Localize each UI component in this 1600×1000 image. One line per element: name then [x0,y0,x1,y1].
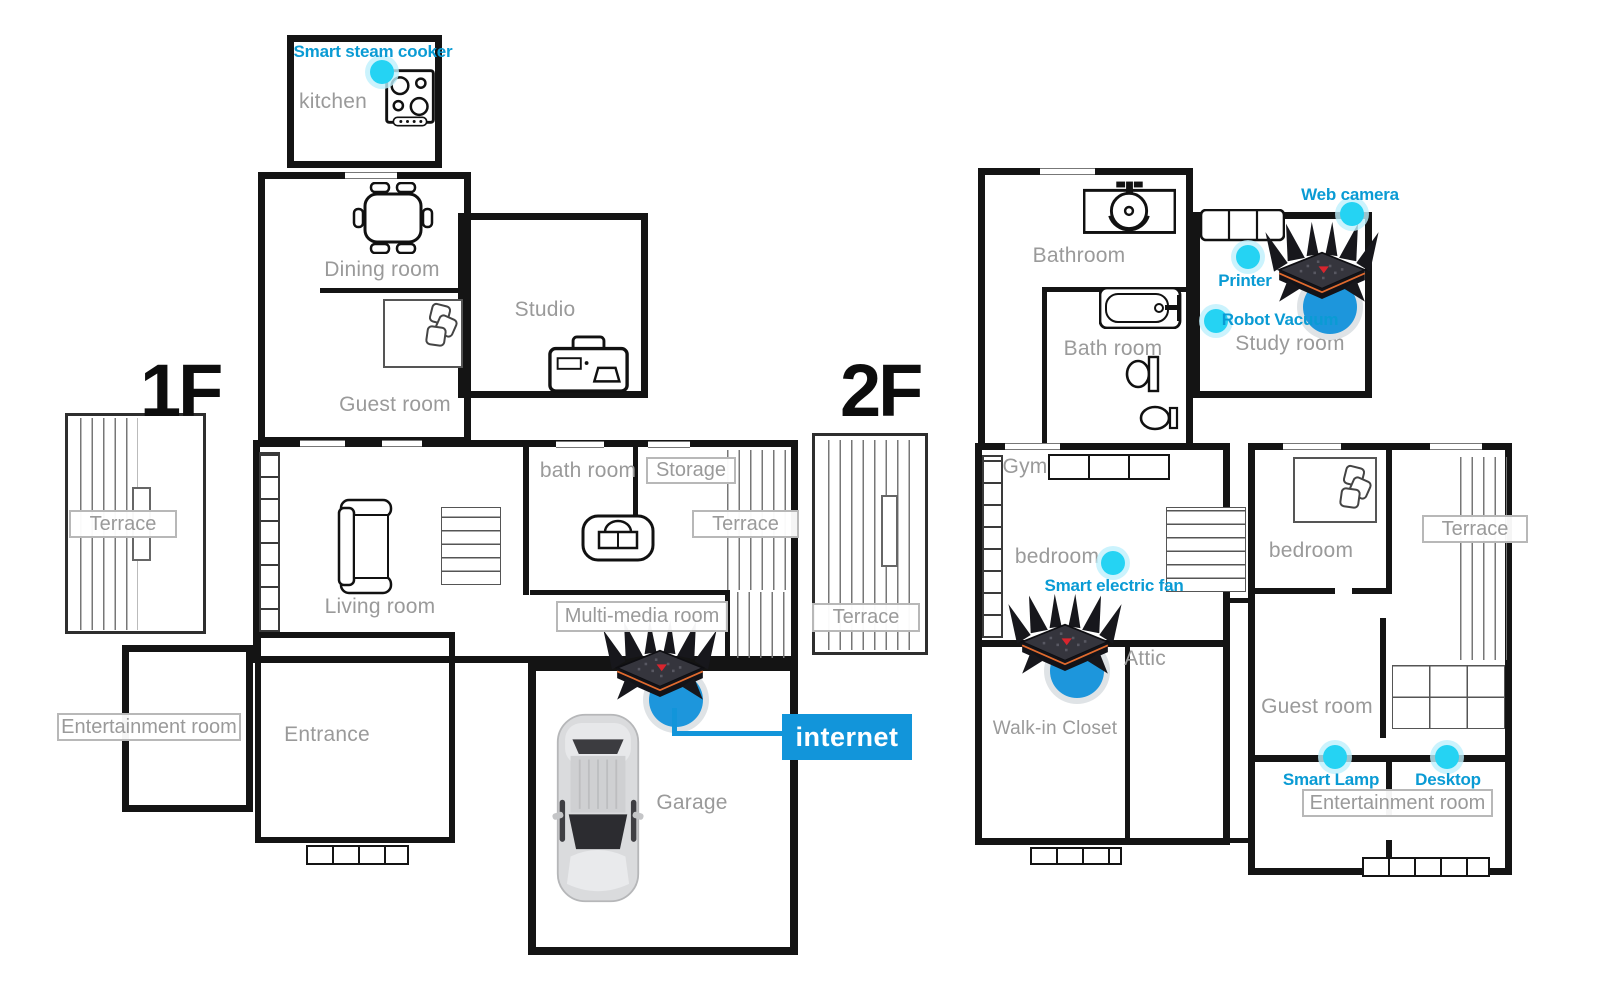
window [1040,168,1095,175]
wall [320,288,471,293]
sofa-icon [337,498,395,595]
staircase-1f [441,507,501,585]
window [648,441,690,448]
dining-table-icon [342,182,444,254]
bed-icon [1293,457,1377,523]
floor2-title: 2F [840,348,920,433]
window [556,441,604,448]
window [1430,443,1482,450]
closet-steps [1030,847,1122,865]
desktop-label: Desktop [1415,770,1481,790]
entrance-label: Entrance [284,723,370,747]
wall [1125,647,1130,840]
internet-line [672,731,784,736]
toilet-icon [1124,353,1160,395]
window [1283,443,1341,450]
closet-grid [1392,665,1505,729]
wall [530,590,730,595]
smart-steam-cooker-label: Smart steam cooker [294,42,453,62]
wall [1042,290,1047,450]
wifi-router-icon [1262,220,1382,306]
terrace-1f-left-label: Terrace [69,510,177,538]
bedroom-2f-right-label: bedroom [1269,539,1353,563]
study-room-label: Study room [1235,332,1344,356]
dining-room-label: Dining room [324,258,439,282]
sink-icon [1083,180,1176,235]
wall [523,447,529,595]
printer-dot [1236,245,1260,269]
smart-electric-fan-label: Smart electric fan [1044,576,1183,596]
guest-room-1f-label: Guest room [339,393,451,417]
internet-badge: internet [782,714,912,760]
terrace-decking [1450,457,1507,660]
entrance-steps [306,845,409,865]
garage-label: Garage [656,791,727,815]
terrace-2f-right-label: Terrace [1422,515,1528,543]
wall [1255,755,1505,762]
wall [1230,598,1248,603]
studio-label: Studio [515,298,576,322]
wifi-router-icon [1005,592,1125,678]
wall [1380,618,1386,738]
wall [1386,450,1392,590]
terrace-2f-left-label: Terrace [812,603,920,632]
multi-media-room-label: Multi-media room [556,601,728,632]
bathtub-icon [1099,287,1184,329]
printer-label: Printer [1218,271,1271,291]
window [1005,443,1060,450]
bathroom-2f-label: Bathroom [1033,244,1126,268]
storage-label: Storage [646,457,736,484]
desk-icon [548,334,630,394]
radiator-2f [982,455,1003,638]
entertainment-steps [1362,857,1490,877]
radiator-1f [259,452,280,632]
gym-closet [1048,454,1170,480]
smart-lamp-dot [1323,745,1347,769]
terrace-1f-right-label: Terrace [692,510,799,538]
floorplan-canvas: 1F [0,0,1600,1000]
web-camera-label: Web camera [1301,185,1399,205]
living-room-label: Living room [325,595,436,619]
robot-vacuum-label: Robot Vacuum [1222,310,1339,330]
window [300,440,345,447]
gym-label: Gym [1003,455,1048,479]
wall [1230,838,1248,843]
kitchen-label: kitchen [299,90,367,114]
smart-electric-fan-dot [1101,551,1125,575]
wall [1255,588,1335,594]
car-icon [552,712,644,904]
stairs-stripes [727,592,787,658]
bed-icon [383,299,463,368]
smart-lamp-label: Smart Lamp [1283,770,1379,790]
bedroom-2f-left-label: bedroom [1015,545,1099,569]
entertainment-room-2f-label: Entertainment room [1302,789,1493,817]
desktop-dot [1435,745,1459,769]
attic-label: Attic [1124,647,1166,671]
window [345,172,397,179]
bathtub-icon [581,514,655,562]
entertainment-room-1f-label: Entertainment room [57,713,241,741]
guest-room-2f-label: Guest room [1261,695,1373,719]
smart-steam-cooker-dot [370,60,394,84]
web-camera-dot [1340,202,1364,226]
floor1-title: 1F [140,348,220,433]
window [382,440,422,447]
bath-room-1f-label: bath room [540,459,636,483]
toilet-icon [1137,400,1179,436]
terrace-bench [881,495,898,567]
walk-in-closet-label: Walk-in Closet [993,718,1118,740]
